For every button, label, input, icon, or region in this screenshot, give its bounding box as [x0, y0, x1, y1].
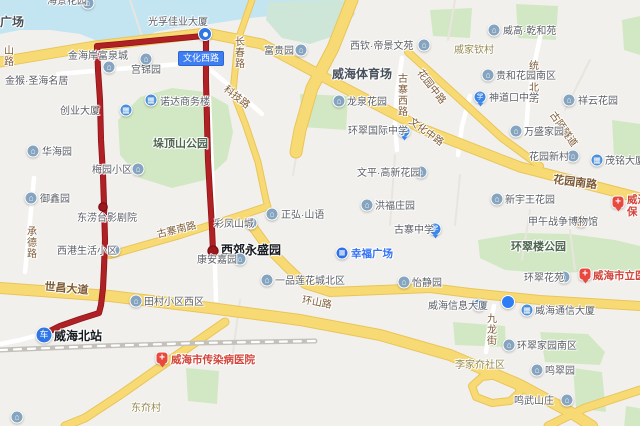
poi-marker[interactable]: 怡静园: [412, 278, 442, 290]
poi-marker[interactable]: 西港生活小区: [57, 246, 117, 258]
poi-marker[interactable]: 威海市立医院: [593, 270, 640, 282]
poi-marker: 广场: [0, 16, 24, 30]
badge-text: 文化西路: [183, 53, 219, 63]
poi-marker[interactable]: 海景花园: [47, 0, 87, 8]
home-icon: ⌂: [130, 295, 143, 308]
label-text: 环山路: [301, 295, 332, 311]
home-icon: ⌂: [25, 192, 38, 205]
label-text: 鸣翠园: [545, 366, 575, 377]
poi-marker[interactable]: 彩凤山城: [214, 219, 254, 231]
label-text: 海景花园: [47, 0, 87, 7]
label-text: 西钦·帝景文苑: [350, 41, 413, 52]
label-text: 威海通信大厦: [535, 306, 595, 317]
label-text: 幸福广场: [351, 248, 393, 260]
map-labels-layer: 广场山路⌂海景花园光孚佳业大厦金海岸富泉城⌂宫锦园金猴·圣海名居▦诺达商务楼▦创…: [0, 0, 640, 426]
poi-marker[interactable]: 光孚佳业大厦: [148, 17, 208, 29]
home-icon: ⌂: [503, 339, 516, 352]
poi-marker[interactable]: 金猴·圣海名居: [5, 76, 68, 88]
poi-label-line: 威海: [627, 194, 640, 206]
label-text: 新宇王花园: [505, 195, 555, 206]
label-text: 九龙街: [485, 313, 496, 346]
poi-marker[interactable]: 田村小区西区: [144, 297, 204, 309]
poi-marker[interactable]: 东涝台影剧院: [77, 213, 137, 225]
label-text: 贵和花园南区: [496, 71, 556, 82]
label-text: 金猴·圣海名居: [5, 76, 68, 87]
label-text: 长春路: [233, 36, 244, 69]
road-label: 世昌大道: [44, 281, 89, 297]
road-label: 九龙街: [484, 313, 496, 346]
poi-marker[interactable]: 鸣武山庄: [514, 396, 554, 408]
label-text: 文化中路: [407, 116, 446, 148]
poi-marker[interactable]: 环翠花苑: [524, 273, 564, 285]
poi-marker[interactable]: 鸣翠园: [545, 366, 575, 378]
hospital-icon: +: [579, 268, 592, 281]
hospital-icon: +: [612, 196, 625, 209]
label-text: 光孚佳业大厦: [148, 17, 208, 28]
home-icon: ⌂: [361, 199, 374, 212]
hospital-icon: +: [156, 352, 169, 365]
bus-icon[interactable]: [198, 27, 212, 41]
label-text: 茂铭大厦: [605, 156, 640, 167]
road-label: 古寨南路: [156, 220, 198, 241]
label-text: 神道口中学: [489, 93, 539, 104]
office-icon: ▦: [120, 104, 133, 117]
road-label: 花园南路: [552, 174, 597, 192]
label-text: 怡静园: [412, 278, 442, 289]
label-text: 威海信息大厦: [428, 301, 488, 312]
poi-marker[interactable]: 祥云花园: [578, 96, 618, 108]
poi-marker[interactable]: 威海市传染病医院: [171, 354, 255, 366]
label-text: 李家夼社区: [455, 360, 505, 371]
poi-marker[interactable]: 梅园小区: [92, 165, 132, 177]
home-icon[interactable]: ⌂: [11, 411, 24, 424]
label-text: 西港生活小区: [57, 246, 117, 257]
label-text: 世昌大道: [44, 281, 89, 297]
poi-marker[interactable]: 正弘·山语: [281, 210, 324, 222]
label-text: 东夼村: [131, 403, 161, 414]
label-text: 万盛家园: [524, 127, 564, 138]
poi-marker[interactable]: 诺达商务楼: [160, 97, 210, 109]
label-text: 古寨南路: [156, 220, 197, 240]
poi-marker[interactable]: 茂铭大厦: [605, 156, 640, 168]
label-text: 文平·高新花园: [357, 168, 420, 179]
label-text: 威海市传染病医院: [171, 354, 255, 366]
home-icon: ⌂: [418, 39, 431, 52]
label-text: 华海园: [42, 147, 72, 158]
home-icon: ⌂: [561, 394, 574, 407]
poi-marker[interactable]: 环翠国际中学: [348, 126, 408, 138]
label-text: 祥云花园: [578, 96, 618, 107]
home-icon: ⌂: [132, 163, 145, 176]
label-text: 科技路: [221, 84, 251, 111]
label-text: 古寨中学: [394, 225, 434, 236]
office-icon: ▦: [591, 154, 604, 167]
poi-marker[interactable]: 御鑫园: [40, 194, 70, 206]
map-canvas[interactable]: 广场山路⌂海景花园光孚佳业大厦金海岸富泉城⌂宫锦园金猴·圣海名居▦诺达商务楼▦创…: [0, 0, 640, 426]
label-text: 一品莲花城北区: [275, 276, 345, 287]
label-text: 诺达商务楼: [160, 97, 210, 108]
home-icon: ⌂: [491, 193, 504, 206]
label-text: 广场: [0, 15, 24, 29]
road-label: 文化中路: [406, 116, 445, 149]
label-text: 花园新村: [529, 152, 569, 163]
poi-label-line: 保: [627, 206, 640, 218]
poi-marker[interactable]: 幸福广场: [351, 248, 393, 260]
poi-marker[interactable]: 一品莲花城北区: [275, 276, 345, 288]
dot-icon[interactable]: [501, 295, 515, 309]
home-icon: ⌂: [398, 276, 411, 289]
label-text: 环翠楼公园: [511, 241, 566, 253]
poi-marker[interactable]: 金海岸富泉城: [68, 51, 128, 63]
label-text: 环翠花苑: [524, 273, 564, 284]
poi-marker[interactable]: 西钦·帝景文苑: [350, 41, 413, 53]
poi-marker[interactable]: 创业大厦: [60, 106, 100, 118]
home-icon: ⌂: [295, 44, 308, 57]
poi-marker[interactable]: 富贵园: [264, 46, 294, 58]
label-text: 戚家钦村: [454, 45, 494, 56]
label-text: 威海体育场: [332, 67, 392, 81]
label-text: 环翠国际中学: [348, 126, 408, 137]
park-label: 环翠楼公园: [511, 241, 566, 254]
poi-marker[interactable]: 威海信息大厦: [428, 301, 488, 313]
poi-marker[interactable]: 洪福庄园: [375, 201, 415, 213]
poi-marker[interactable]: 威海保: [627, 194, 640, 218]
label-text: 垛顶山公园: [153, 138, 208, 150]
label-text: 富贵园: [264, 46, 294, 57]
park-label: 垛顶山公园: [153, 138, 208, 151]
area-label: 李家夼社区: [455, 360, 505, 372]
label-text: 康安嘉园: [197, 255, 237, 266]
home-icon: ⌂: [482, 69, 495, 82]
destination-label[interactable]: 威海北站: [54, 330, 102, 344]
label-text: 田村小区西区: [144, 297, 204, 308]
poi-marker[interactable]: 贵和花园南区: [496, 71, 556, 83]
poi-marker[interactable]: 华海园: [42, 147, 72, 159]
office-icon: ▦: [521, 304, 534, 317]
label-text: 创业大厦: [60, 106, 100, 117]
poi-marker[interactable]: 宫锦园: [131, 65, 161, 77]
label-text: 金海岸富泉城: [68, 51, 128, 62]
label-text: 环翠家园南区: [517, 341, 577, 352]
home-icon: ⌂: [531, 364, 544, 377]
poi-marker[interactable]: 威海通信大厦: [535, 306, 595, 318]
road-label: 长春路: [232, 36, 244, 69]
road-label: 环山路: [301, 295, 333, 312]
poi-marker[interactable]: 花园新村: [529, 152, 569, 164]
label-text: 正弘·山语: [281, 210, 324, 221]
label-text: 威海北站: [54, 329, 102, 343]
road-label: 山路: [1, 45, 13, 67]
poi-marker[interactable]: 万盛家园: [524, 127, 564, 139]
home-icon[interactable]: ⌂: [140, 53, 153, 66]
school-icon: 学: [474, 91, 487, 104]
selected-road-badge[interactable]: 文化西路: [178, 51, 224, 66]
road-label: 承德路: [24, 226, 36, 259]
label-text: 鸣武山庄: [514, 396, 554, 407]
label-text: 甲午战争博物馆: [528, 217, 598, 228]
label-text: 东涝台影剧院: [77, 213, 137, 224]
label-text: 洪福庄园: [375, 201, 415, 212]
office-icon: ▦: [145, 94, 158, 107]
home-icon: ⌂: [266, 208, 279, 221]
poi-marker[interactable]: 新宇王花园: [505, 195, 555, 207]
home-icon: ⌂: [510, 125, 523, 138]
label-text: 威高·乾和苑: [503, 26, 556, 37]
poi-marker[interactable]: 威高·乾和苑: [503, 26, 556, 38]
poi-marker[interactable]: 古寨中学: [394, 225, 434, 237]
road-label: 花园中路: [414, 68, 448, 107]
label-text: 威海市立医院: [593, 270, 640, 282]
label-text: 山路: [2, 45, 13, 67]
home-icon: ⌂: [103, 61, 116, 74]
area-label: 戚家钦村: [454, 45, 494, 57]
road-label: 古寨西路: [395, 73, 407, 117]
poi-marker: 威海体育场: [332, 68, 392, 82]
road-label: 科技路: [221, 84, 252, 112]
home-icon: ⌂: [488, 24, 501, 37]
poi-marker[interactable]: 康安嘉园: [197, 255, 237, 267]
poi-marker[interactable]: 神道口中学: [489, 93, 539, 105]
station-icon: 车: [36, 327, 53, 344]
area-label: 东夼村: [131, 403, 161, 415]
home-icon: ⌂: [333, 95, 346, 108]
label-text: 梅园小区: [92, 165, 132, 176]
label-text: 彩凤山城: [214, 219, 254, 230]
poi-marker[interactable]: 龙泉花园: [347, 97, 387, 109]
label-text: 龙泉花园: [347, 97, 387, 108]
poi-marker[interactable]: 甲午战争博物馆: [528, 217, 598, 229]
label-text: 宫锦园: [131, 65, 161, 76]
label-text: 御鑫园: [40, 194, 70, 205]
label-text: 古寨西路: [396, 73, 407, 117]
home-icon: ⌂: [563, 94, 576, 107]
label-text: 花园南路: [553, 174, 598, 191]
plaza-icon: ▦: [336, 247, 349, 260]
poi-marker[interactable]: 环翠家园南区: [517, 341, 577, 353]
label-text: 承德路: [25, 226, 36, 259]
poi-marker[interactable]: 文平·高新花园: [357, 168, 420, 180]
home-icon: ⌂: [27, 145, 40, 158]
label-text: 花园中路: [414, 68, 447, 106]
home-icon: ⌂: [261, 274, 274, 287]
